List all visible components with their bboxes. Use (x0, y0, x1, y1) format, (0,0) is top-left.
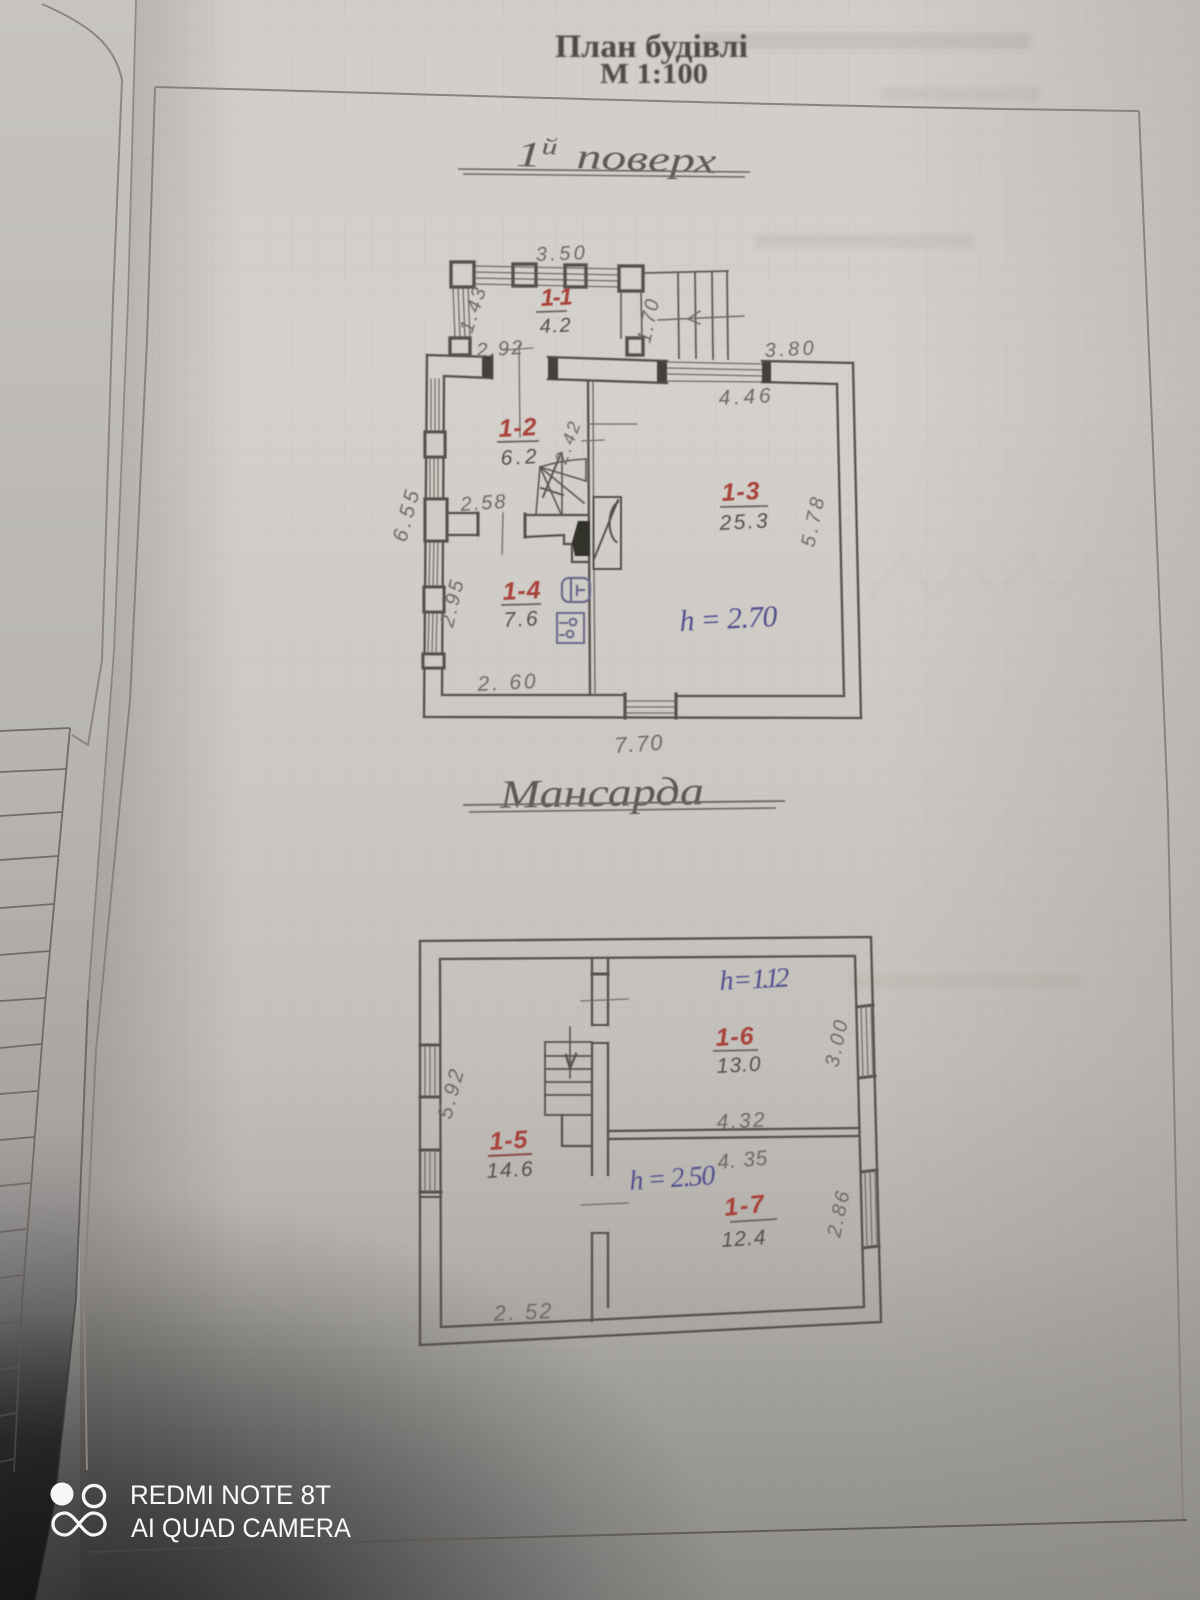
svg-text:13.0: 13.0 (716, 1053, 761, 1078)
svg-text:1-6: 1-6 (715, 1022, 756, 1052)
svg-text:4. 35: 4. 35 (716, 1147, 768, 1174)
svg-text:4.2: 4.2 (539, 314, 571, 338)
svg-text:2.58: 2.58 (459, 491, 506, 516)
svg-text:12.4: 12.4 (721, 1226, 766, 1252)
svg-text:25.3: 25.3 (718, 509, 768, 535)
svg-text:2.92: 2.92 (475, 337, 523, 362)
svg-text:1-1: 1-1 (540, 283, 573, 312)
svg-text:h = 1.12: h = 1.12 (719, 962, 791, 997)
svg-text:М 1:100: М 1:100 (600, 59, 708, 90)
svg-text:6.2: 6.2 (500, 445, 537, 470)
svg-text:3.50: 3.50 (535, 242, 585, 266)
svg-text:1-5: 1-5 (488, 1125, 529, 1156)
svg-text:14.6: 14.6 (486, 1158, 533, 1183)
svg-text:h = 2.70: h = 2.70 (679, 600, 779, 638)
svg-text:h = 2.50: h = 2.50 (628, 1160, 716, 1197)
svg-text:1-7: 1-7 (723, 1190, 767, 1222)
svg-text:7.6: 7.6 (503, 607, 538, 632)
svg-text:1-3: 1-3 (721, 477, 761, 507)
svg-text:4.46: 4.46 (718, 384, 771, 410)
svg-text:1-4: 1-4 (502, 576, 542, 606)
svg-text:REDMI NOTE 8T: REDMI NOTE 8T (130, 1480, 331, 1510)
svg-text:AI QUAD CAMERA: AI QUAD CAMERA (131, 1513, 351, 1543)
svg-text:7.70: 7.70 (614, 730, 664, 758)
svg-text:4.32: 4.32 (716, 1108, 765, 1133)
svg-text:3.80: 3.80 (764, 337, 814, 362)
svg-text:1-2: 1-2 (498, 413, 538, 443)
